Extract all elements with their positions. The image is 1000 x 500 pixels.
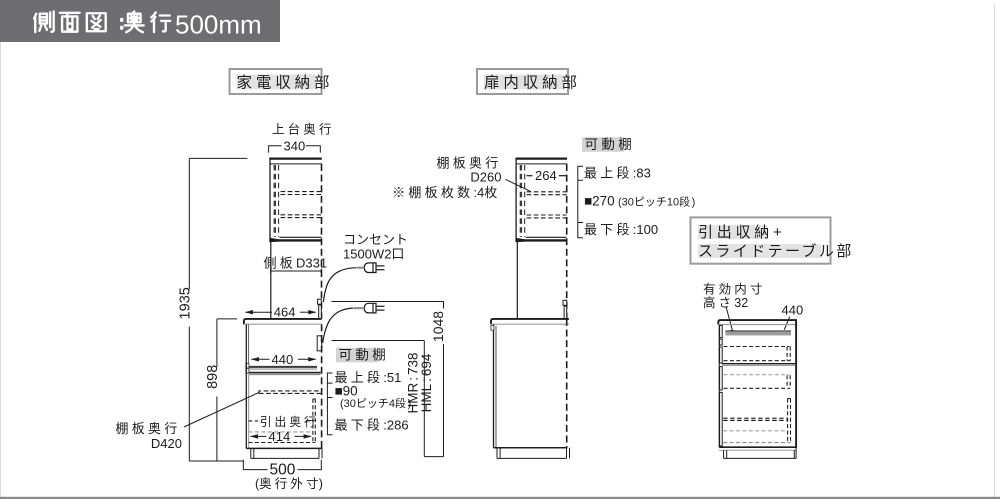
svg-text:(30ピッチ10段): (30ピッチ10段) (618, 194, 695, 208)
svg-text:※棚板枚数:4枚: ※棚板枚数:4枚 (392, 185, 500, 200)
svg-text:■90: ■90 (335, 384, 358, 399)
svg-text:最下段:286: 最下段:286 (335, 418, 409, 433)
svg-text:340: 340 (284, 138, 306, 153)
svg-text:有効内寸: 有効内寸 (703, 281, 766, 296)
svg-text:コンセント: コンセント (343, 232, 408, 247)
svg-text:898: 898 (205, 365, 221, 389)
svg-text:棚板奥行: 棚板奥行 (436, 156, 501, 171)
svg-text:1048: 1048 (430, 311, 446, 342)
svg-text:棚板奥行: 棚板奥行 (115, 421, 180, 436)
svg-text:最上段:83: 最上段:83 (584, 166, 651, 181)
svg-text:可動棚: 可動棚 (585, 137, 636, 152)
svg-text:440: 440 (272, 352, 294, 367)
svg-text:高さ32: 高さ32 (703, 295, 748, 310)
svg-text:■270: ■270 (584, 193, 615, 208)
svg-text:1500W2口: 1500W2口 (343, 247, 408, 262)
svg-text:264: 264 (535, 168, 557, 183)
svg-text:1935: 1935 (177, 287, 193, 319)
svg-text:500mm: 500mm (175, 10, 262, 40)
svg-text:D260: D260 (470, 170, 501, 185)
svg-text:(奥行外寸): (奥行外寸) (255, 477, 323, 491)
svg-text:上台奥行: 上台奥行 (272, 122, 335, 137)
svg-text:464: 464 (274, 305, 296, 320)
svg-text:414: 414 (269, 429, 291, 444)
svg-text:440: 440 (782, 303, 804, 318)
svg-text:可動棚: 可動棚 (339, 347, 390, 362)
svg-text:(30ピッチ4段): (30ピッチ4段) (340, 396, 411, 410)
svg-text:HML:694: HML:694 (419, 353, 434, 412)
svg-text:引出奥行: 引出奥行 (260, 415, 319, 429)
svg-text:D420: D420 (151, 436, 182, 451)
svg-text:側板D331: 側板D331 (264, 255, 328, 270)
svg-text:最下段:100: 最下段:100 (584, 222, 658, 237)
